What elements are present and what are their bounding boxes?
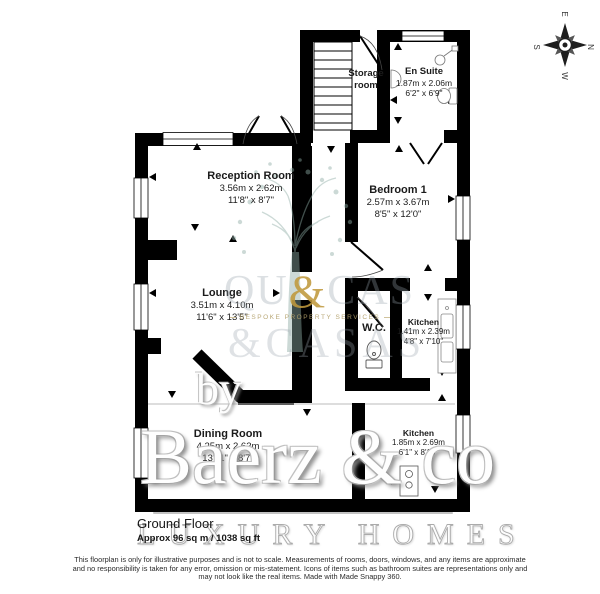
disclaimer: This floorplan is only for illustrative … bbox=[0, 556, 600, 582]
room-label-reception: Reception Room 3.56m x 2.62m 11'8" x 8'7… bbox=[176, 170, 326, 207]
shower-icon bbox=[435, 46, 458, 65]
room-size-imperial: 11'8" x 8'7" bbox=[176, 195, 326, 207]
room-label-lounge: Lounge 3.51m x 4.10m 11'6" x 13'5" bbox=[147, 287, 297, 324]
room-size-imperial: 8'5" x 12'0" bbox=[323, 209, 473, 221]
disclaimer-line: may not look like the real items. Made w… bbox=[0, 573, 600, 582]
door-ensuite bbox=[410, 143, 442, 164]
room-label-bedroom1: Bedroom 1 2.57m x 3.67m 8'5" x 12'0" bbox=[323, 184, 473, 221]
room-name: Reception Room bbox=[176, 170, 326, 183]
room-name: Lounge bbox=[147, 287, 297, 300]
room-label-ensuite: En Suite 1.87m x 2.06m 6'2" x 6'9" bbox=[379, 66, 469, 98]
room-name: Bedroom 1 bbox=[323, 184, 473, 197]
window-icon bbox=[134, 178, 148, 218]
compass-east-label: E bbox=[560, 11, 569, 16]
room-label-dining: Dining Room 4.25m x 2.62m 13'11" x 8'7" bbox=[153, 428, 303, 465]
window-icon bbox=[163, 133, 233, 146]
room-size-imperial: 13'11" x 8'7" bbox=[153, 453, 303, 465]
door-bedroom bbox=[351, 242, 383, 277]
room-size-metric: 3.51m x 4.10m bbox=[147, 300, 297, 312]
floorplan-drawing: E N S W bbox=[0, 0, 600, 594]
floor-area: Approx 96 sq m / 1038 sq ft bbox=[137, 533, 260, 544]
room-name: Kitchen bbox=[376, 317, 471, 327]
window-icon bbox=[134, 284, 148, 330]
room-label-kitchen: Kitchen 1.41m x 2.39m 4'8" x 7'10" bbox=[376, 317, 471, 347]
room-size-imperial: 6'1" x 8'10" bbox=[371, 448, 466, 458]
compass-west-label: W bbox=[560, 72, 569, 80]
compass-rose: E N S W bbox=[532, 11, 595, 80]
room-size-metric: 1.41m x 2.39m bbox=[376, 327, 471, 337]
window-icon bbox=[134, 428, 148, 478]
room-size-imperial: 11'6" x 13'5" bbox=[147, 312, 297, 324]
room-name: En Suite bbox=[379, 66, 469, 78]
room-size-metric: 3.56m x 2.62m bbox=[176, 183, 326, 195]
floor-title: Ground Floor bbox=[137, 516, 214, 531]
window-icon bbox=[402, 31, 444, 41]
room-name: Kitchen bbox=[371, 428, 466, 438]
room-label-kitchen2: Kitchen 1.85m x 2.69m 6'1" x 8'10" bbox=[371, 428, 466, 458]
room-size-metric: 1.87m x 2.06m bbox=[379, 78, 469, 88]
floorplan-page: E N S W bbox=[0, 0, 600, 594]
room-size-imperial: 6'2" x 6'9" bbox=[379, 88, 469, 98]
stove-icon bbox=[400, 466, 418, 496]
room-size-metric: 2.57m x 3.67m bbox=[323, 197, 473, 209]
room-name: Dining Room bbox=[153, 428, 303, 441]
compass-north-label: N bbox=[586, 44, 595, 50]
room-size-metric: 1.85m x 2.69m bbox=[371, 438, 466, 448]
room-size-metric: 4.25m x 2.62m bbox=[153, 441, 303, 453]
compass-south-label: S bbox=[532, 44, 541, 49]
room-size-imperial: 4'8" x 7'10" bbox=[376, 337, 471, 347]
